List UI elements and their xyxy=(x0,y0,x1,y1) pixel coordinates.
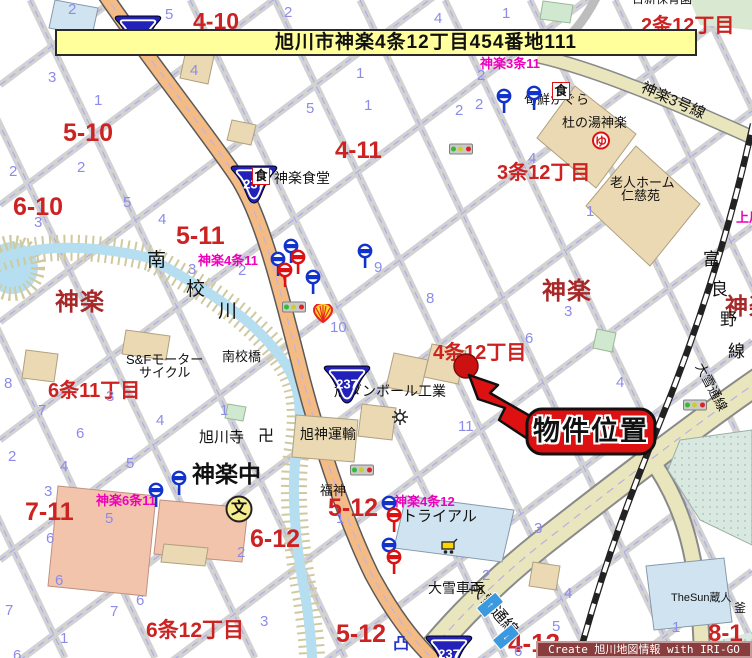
property-marker xyxy=(454,354,478,378)
address-banner: 旭川市神楽4条12丁目454番地111 xyxy=(55,29,697,56)
property-location-label: 物件位置 xyxy=(527,409,655,454)
property-callout-graphics xyxy=(0,0,752,658)
map-canvas[interactable]: 4-102条12丁目5-104-113条12丁目6-105-114条12丁目6条… xyxy=(0,0,752,658)
map-credit-watermark: Create 旭川地図情報 with IRI-GO xyxy=(536,641,752,658)
